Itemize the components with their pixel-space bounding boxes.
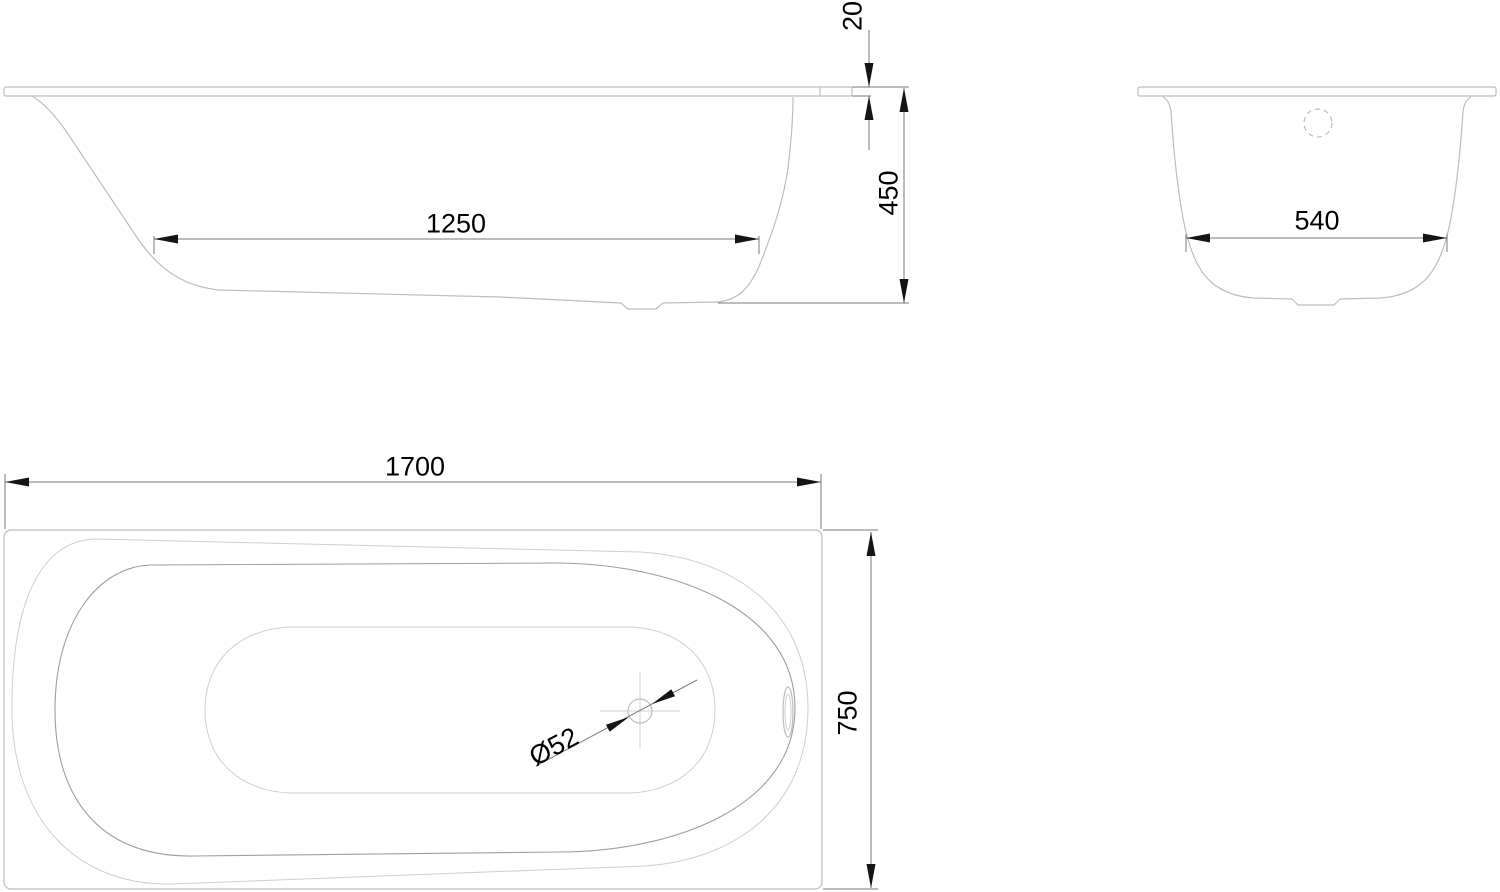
end-overflow-hole-circle [1304,109,1332,137]
side-drain-notch [621,303,663,309]
plan-outer-rect [4,530,822,889]
side-left-wall-and-bottom [32,96,621,303]
dim-540-arrow-right [1423,234,1447,243]
dim-20-arrow-lower [865,96,874,120]
dim-1250-arrow-right [735,235,759,244]
dim-750-arrow-top [867,532,876,556]
dim-label-1700: 1700 [385,454,445,481]
dim-1700-arrow-right [797,478,821,487]
dim-540-arrow-left [1186,234,1210,243]
bathtub-drawing-svg [0,0,1500,892]
dim-450-arrow-top [900,88,909,112]
dim-label-20: 20 [840,1,867,31]
dim-label-750: 750 [835,690,862,735]
dim-label-540: 540 [1294,208,1339,235]
side-rim-bar [4,87,852,96]
dim-450-arrow-bottom [900,279,909,303]
plan-bowl-top-contour [55,563,795,856]
end-bowl-right-wall [1340,97,1471,299]
end-rim-bar [1138,87,1496,96]
technical-drawing-canvas: 1250 20 450 540 1700 750 Ø52 [0,0,1500,892]
dim-1700 [5,474,821,529]
plan-overflow-oval-inner [785,694,791,730]
dim-52-arrow-upper [652,689,675,704]
dim-1700-arrow-left [5,478,29,487]
dim-20 [865,30,874,150]
dim-1250-arrow-left [154,235,178,244]
side-view [4,30,909,309]
dim-20-arrow-upper [865,63,874,87]
plan-rim-inner-contour [12,539,808,884]
dim-52-arrow-lower [606,717,629,732]
dim-label-450: 450 [876,170,903,215]
end-drain-notch [1292,299,1340,305]
side-right-wall [718,97,793,302]
dim-label-1250: 1250 [426,211,486,238]
end-view [1138,87,1496,305]
dim-750-arrow-bottom [867,864,876,888]
side-bottom-right [663,302,718,303]
plan-bowl-bottom-contour [205,627,715,793]
end-bowl-left-wall [1163,97,1292,299]
plan-view [4,474,878,889]
dim-540 [1186,234,1447,253]
